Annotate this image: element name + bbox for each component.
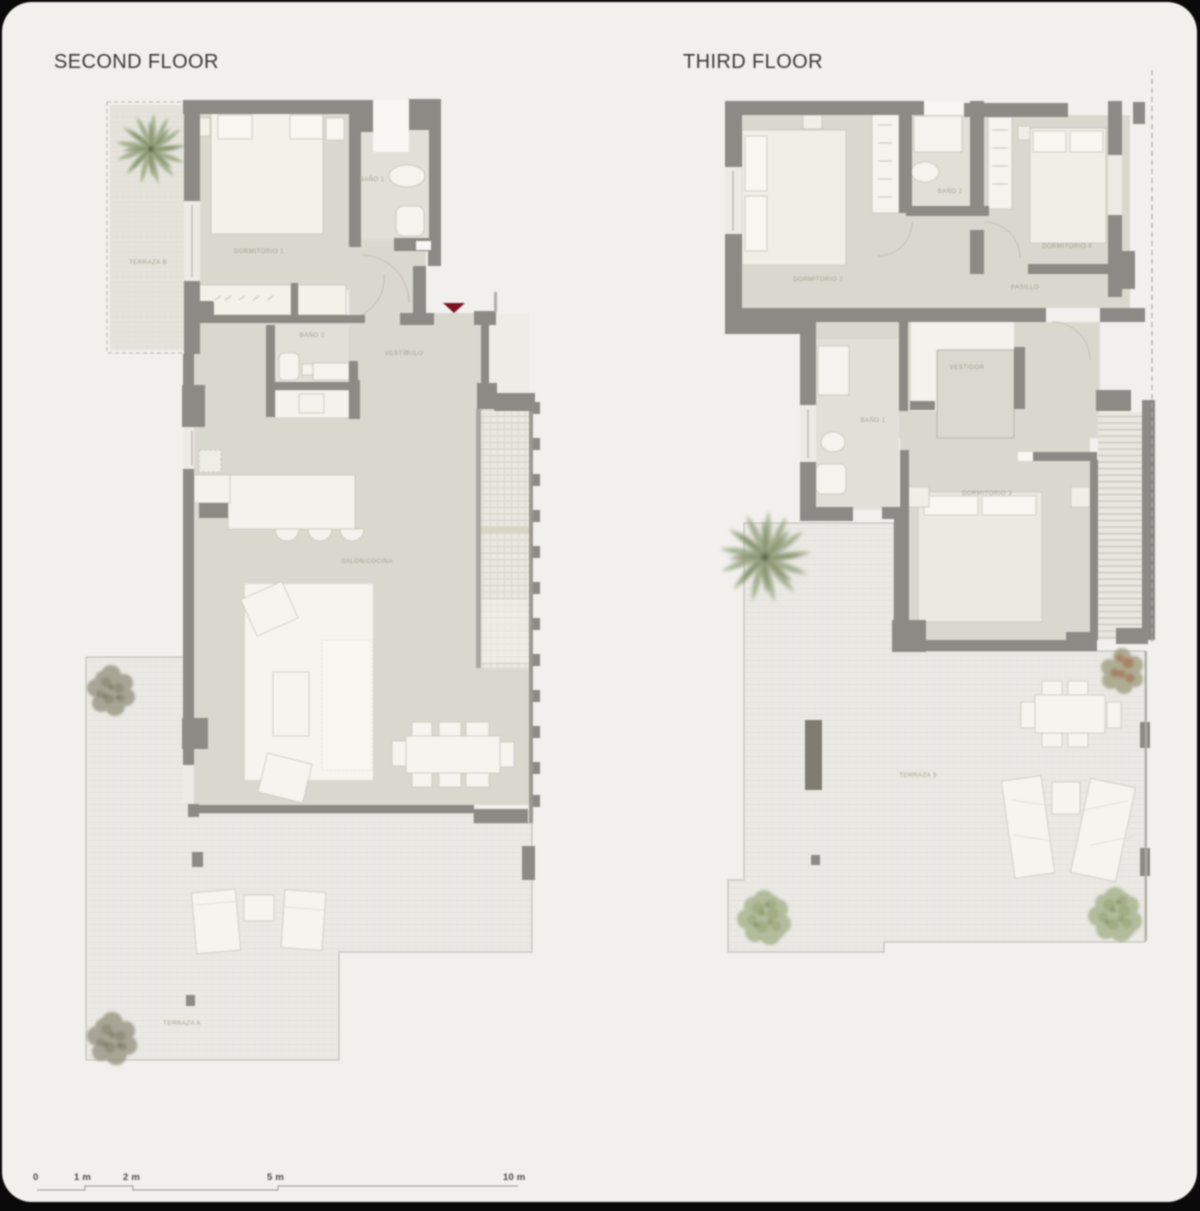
svg-text:2 m: 2 m xyxy=(123,1172,140,1183)
svg-text:BAÑO 2: BAÑO 2 xyxy=(299,332,324,339)
svg-text:VESTÍBULO: VESTÍBULO xyxy=(385,350,423,357)
svg-text:DORMITORIO 4: DORMITORIO 4 xyxy=(1042,243,1092,250)
svg-text:PASILLO: PASILLO xyxy=(1011,284,1039,291)
svg-text:10 m: 10 m xyxy=(503,1172,525,1183)
svg-text:SALÓN/COCINA: SALÓN/COCINA xyxy=(341,558,393,565)
svg-text:VESTIDOR: VESTIDOR xyxy=(950,364,985,371)
svg-text:BAÑO 2: BAÑO 2 xyxy=(937,188,962,195)
svg-text:DORMITORIO 3: DORMITORIO 3 xyxy=(962,490,1012,497)
svg-text:TERRAZA 3: TERRAZA 3 xyxy=(899,772,936,779)
svg-text:5 m: 5 m xyxy=(267,1172,284,1183)
svg-text:0: 0 xyxy=(33,1172,38,1183)
svg-text:SECOND FLOOR: SECOND FLOOR xyxy=(54,51,219,73)
svg-text:THIRD FLOOR: THIRD FLOOR xyxy=(683,51,823,73)
svg-text:TERRAZA A: TERRAZA A xyxy=(163,1020,201,1027)
svg-text:TERRAZA B: TERRAZA B xyxy=(129,259,167,266)
svg-text:BAÑO 1: BAÑO 1 xyxy=(359,176,384,183)
svg-text:DORMITORIO 2: DORMITORIO 2 xyxy=(793,276,843,283)
svg-text:1 m: 1 m xyxy=(74,1172,91,1183)
svg-text:DORMITORIO 1: DORMITORIO 1 xyxy=(234,248,284,255)
svg-text:BAÑO 1: BAÑO 1 xyxy=(860,417,885,424)
